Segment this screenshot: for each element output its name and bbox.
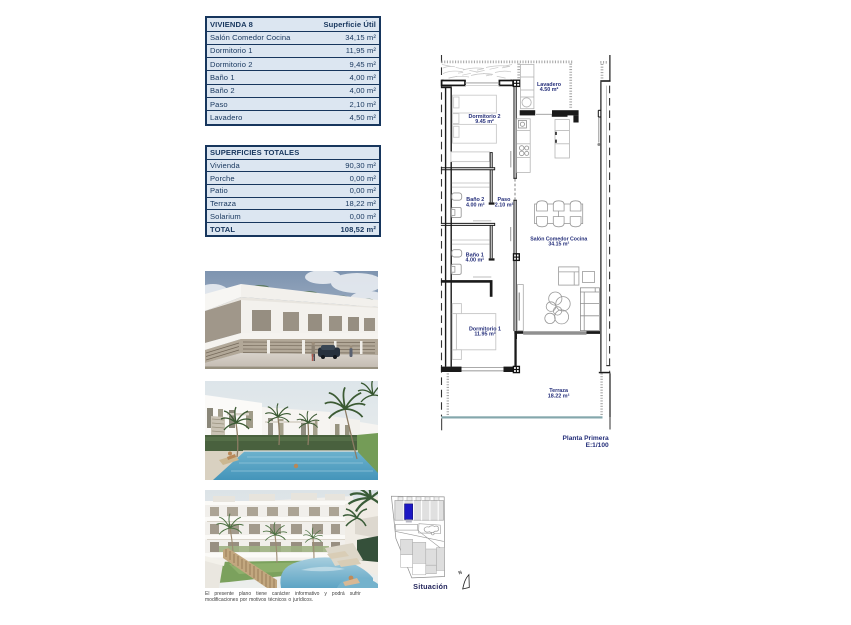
- svg-text:Situación: Situación: [413, 582, 448, 591]
- svg-text:9.45 m²: 9.45 m²: [475, 119, 494, 125]
- svg-text:18.22 m²: 18.22 m²: [548, 393, 570, 399]
- svg-text:E:1/100: E:1/100: [586, 442, 609, 449]
- svg-text:2.10 m²: 2.10 m²: [495, 202, 514, 208]
- svg-text:34.15 m²: 34.15 m²: [548, 241, 569, 247]
- svg-text:4.00 m²: 4.00 m²: [466, 202, 485, 208]
- svg-text:N: N: [458, 569, 463, 575]
- svg-text:4.00 m²: 4.00 m²: [466, 258, 485, 264]
- svg-text:11.95 m²: 11.95 m²: [474, 332, 495, 338]
- svg-text:4.50 m²: 4.50 m²: [540, 87, 559, 93]
